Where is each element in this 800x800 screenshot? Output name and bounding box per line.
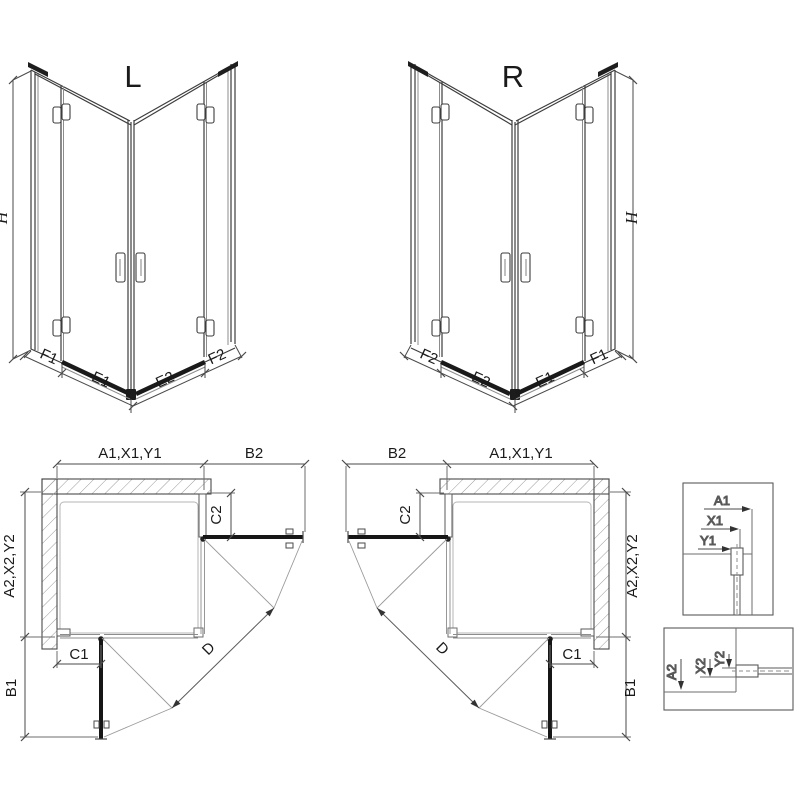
hatched-wall-side-left-plan <box>42 479 57 649</box>
dim-label-f1-right-view: F1 <box>588 346 611 369</box>
dim-label-overall-depth-left-plan: A2,X2,Y2 <box>1 534 18 597</box>
dim-label-c2-right-plan: C2 <box>397 505 414 524</box>
dim-label-f2-left-view: F2 <box>206 346 229 369</box>
plan-view-right: B2 A1,X1,Y1 C2 A2,X2,Y2 C1 B1 D <box>342 445 641 741</box>
dim-label-overall-width-right-plan: A1,X1,Y1 <box>489 445 552 462</box>
hatched-wall-side-right-plan <box>594 479 609 649</box>
dim-label-diagonal-right-plan: D <box>432 639 452 659</box>
dim-label-overall-width-left-plan: A1,X1,Y1 <box>98 445 161 462</box>
detail-dim-label-y1: Y1 <box>700 533 716 548</box>
dim-label-b1-left-plan: B1 <box>3 679 20 697</box>
dim-label-diagonal-left-plan: D <box>199 639 219 659</box>
detail-dim-label-x1: X1 <box>707 513 723 528</box>
enclosure-plan-geometry-left <box>20 460 309 741</box>
dim-label-overall-depth-right-plan: A2,X2,Y2 <box>624 534 641 597</box>
plan-view-left: A1,X1,Y1 B2 C2 A2,X2,Y2 C1 B1 D <box>1 445 309 741</box>
dim-label-b2-left-plan: B2 <box>245 445 263 462</box>
dim-label-c1-right-plan: C1 <box>562 646 581 663</box>
detail-box-wall-profile-vertical: A1 X1 Y1 <box>683 483 773 615</box>
dim-label-f2-right-view: F2 <box>417 346 440 369</box>
dim-label-b1-right-plan: B1 <box>622 679 639 697</box>
enclosure-plan-geometry-right <box>342 460 631 741</box>
variant-label-left: L <box>124 59 141 94</box>
detail-dim-label-x2: X2 <box>693 658 708 674</box>
detail-dim-label-a2: A2 <box>664 664 679 680</box>
hatched-wall-top-right-plan <box>440 479 609 494</box>
height-dim-label-left: H <box>0 210 11 225</box>
variant-label-right: R <box>502 59 524 94</box>
detail-dim-label-a1: A1 <box>714 493 730 508</box>
detail-box-wall-profile-horizontal: A2 X2 Y2 <box>664 628 793 710</box>
shower-enclosure-drawing: L H F1 E1 E2 F2 R H F2 E2 E1 F1 A1,X1,Y1… <box>0 0 800 800</box>
dim-label-f1-left-view: F1 <box>37 346 60 369</box>
technical-drawing-sheet: L H F1 E1 E2 F2 R H F2 E2 E1 F1 A1,X1,Y1… <box>0 0 800 800</box>
detail-dim-label-y2: Y2 <box>712 651 727 667</box>
height-dim-label-right: H <box>622 210 641 225</box>
perspective-view-left: L H F1 E1 E2 F2 <box>0 59 246 413</box>
dim-label-c1-left-plan: C1 <box>69 646 88 663</box>
dim-label-b2-right-plan: B2 <box>388 445 406 462</box>
perspective-view-right: R H F2 E2 E1 F1 <box>400 59 641 413</box>
hatched-wall-top-left-plan <box>42 479 211 494</box>
dim-label-c2-left-plan: C2 <box>208 505 225 524</box>
